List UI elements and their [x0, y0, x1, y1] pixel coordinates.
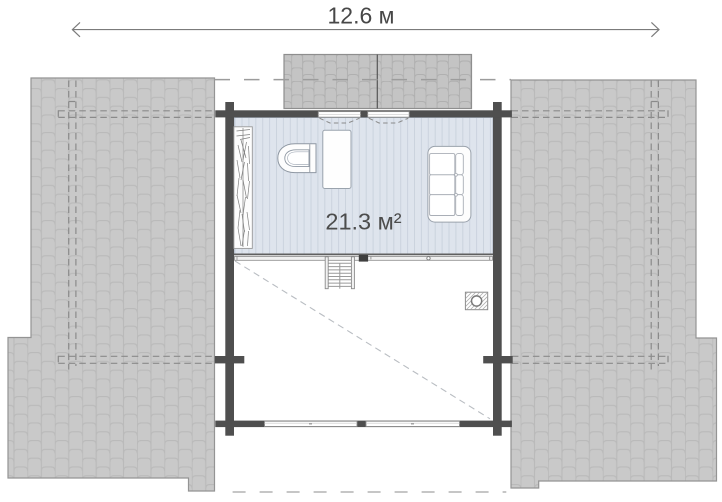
svg-text:12.6 м: 12.6 м: [328, 3, 395, 29]
svg-text:21.3 м²: 21.3 м²: [325, 209, 401, 235]
